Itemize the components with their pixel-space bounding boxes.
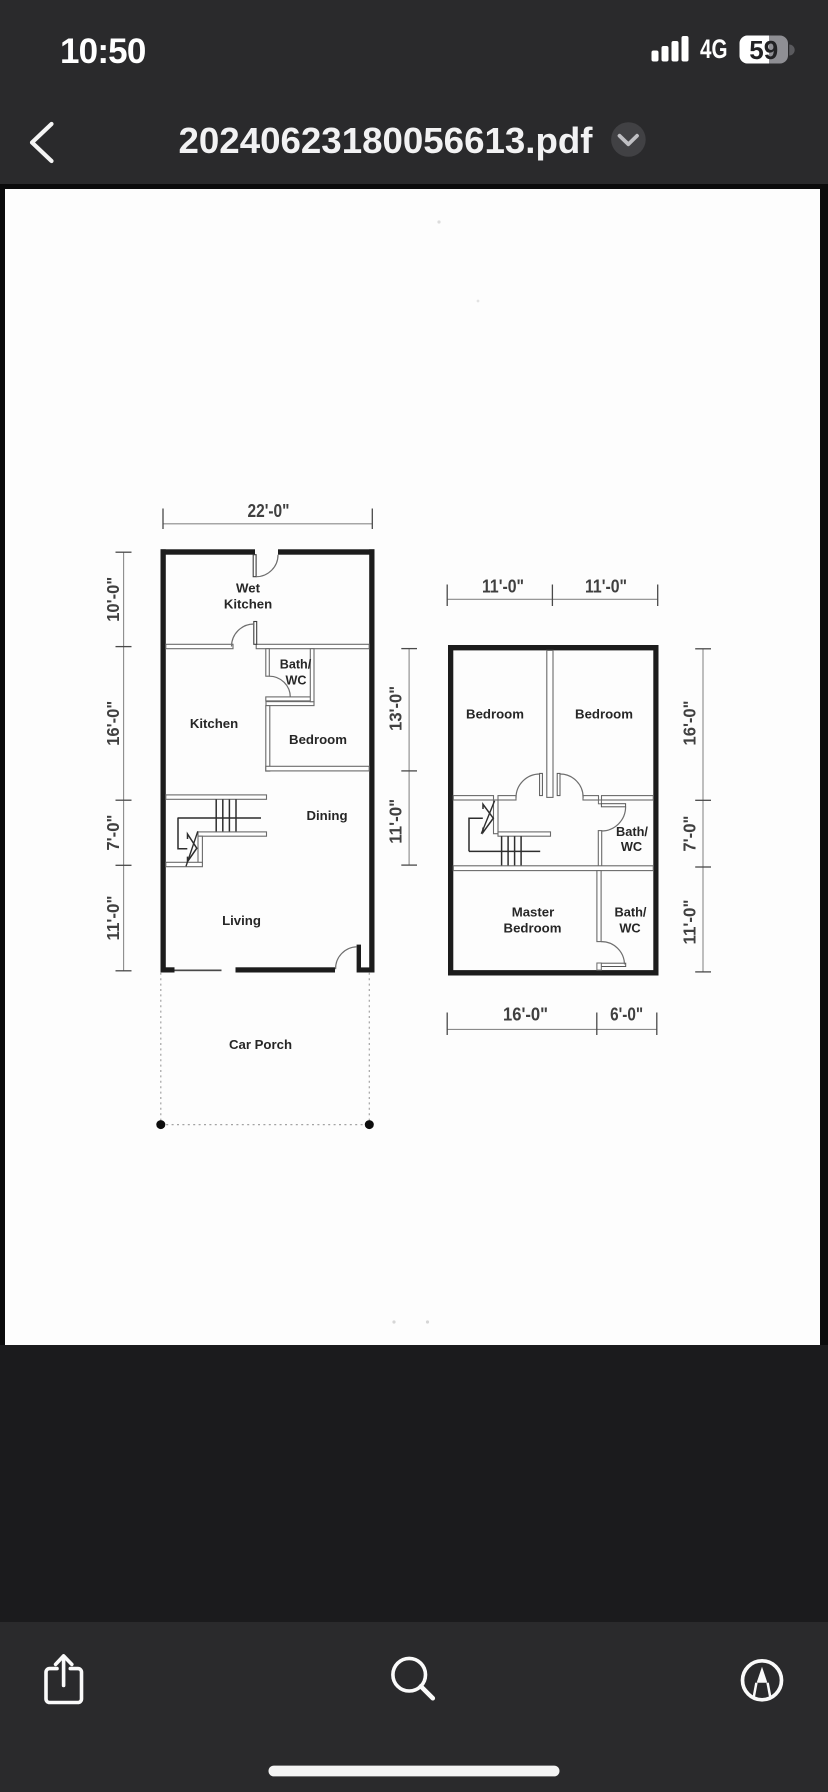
- svg-text:Living: Living: [222, 913, 261, 928]
- svg-text:7'-0": 7'-0": [103, 815, 123, 851]
- svg-text:7'-0": 7'-0": [680, 816, 700, 852]
- svg-text:Bedroom: Bedroom: [289, 732, 347, 747]
- svg-text:Car Porch: Car Porch: [229, 1037, 292, 1052]
- svg-text:20240623180056613.pdf: 20240623180056613.pdf: [179, 120, 594, 161]
- svg-text:11'-0": 11'-0": [482, 576, 524, 596]
- svg-text:Bath/: Bath/: [616, 824, 648, 839]
- svg-text:Bath/: Bath/: [280, 658, 312, 672]
- svg-text:Kitchen: Kitchen: [190, 716, 238, 731]
- svg-text:11'-0": 11'-0": [585, 576, 627, 596]
- svg-text:13'-0": 13'-0": [386, 686, 406, 731]
- svg-text:Master: Master: [512, 905, 555, 920]
- svg-text:16'-0": 16'-0": [103, 701, 123, 746]
- svg-text:11'-0": 11'-0": [680, 900, 700, 945]
- svg-text:Dining: Dining: [306, 808, 347, 823]
- svg-text:Bedroom: Bedroom: [466, 707, 524, 722]
- svg-text:10'-0": 10'-0": [103, 577, 123, 622]
- svg-text:11'-0": 11'-0": [103, 896, 123, 941]
- svg-text:Bath/: Bath/: [615, 905, 647, 920]
- svg-text:WC: WC: [621, 839, 642, 854]
- svg-text:16'-0": 16'-0": [680, 701, 700, 746]
- svg-text:6'-0": 6'-0": [610, 1005, 643, 1025]
- svg-text:4G: 4G: [700, 34, 728, 64]
- svg-text:Bedroom: Bedroom: [504, 921, 562, 936]
- svg-text:22'-0": 22'-0": [248, 501, 290, 521]
- svg-text:WC: WC: [619, 921, 640, 936]
- svg-text:10:50: 10:50: [60, 32, 146, 71]
- svg-text:Bedroom: Bedroom: [575, 707, 633, 722]
- svg-text:11'-0": 11'-0": [386, 799, 406, 844]
- svg-text:Kitchen: Kitchen: [224, 597, 272, 612]
- svg-text:WC: WC: [286, 674, 307, 688]
- svg-text:16'-0": 16'-0": [503, 1005, 548, 1025]
- svg-text:Wet: Wet: [236, 581, 261, 596]
- svg-text:59: 59: [749, 35, 778, 65]
